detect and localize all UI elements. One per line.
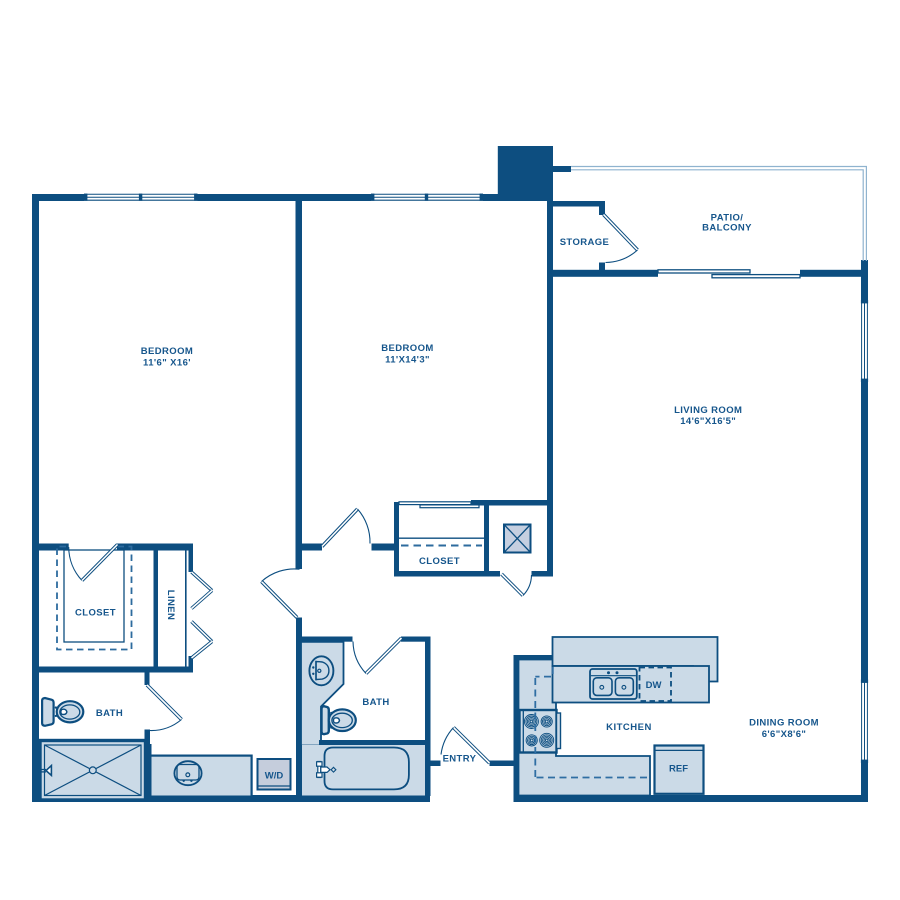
svg-text:BATH: BATH bbox=[362, 697, 389, 708]
svg-text:14'6"X16'5": 14'6"X16'5" bbox=[680, 416, 736, 427]
svg-text:6'6"X8'6": 6'6"X8'6" bbox=[762, 729, 807, 740]
svg-text:11'X14'3": 11'X14'3" bbox=[385, 354, 430, 365]
svg-text:STORAGE: STORAGE bbox=[560, 237, 610, 248]
svg-text:CLOSET: CLOSET bbox=[75, 608, 116, 619]
svg-text:LIVING ROOM: LIVING ROOM bbox=[674, 405, 742, 416]
svg-text:DW: DW bbox=[646, 680, 662, 691]
svg-text:BALCONY: BALCONY bbox=[702, 222, 752, 233]
svg-text:BATH: BATH bbox=[96, 708, 123, 719]
svg-text:KITCHEN: KITCHEN bbox=[606, 722, 652, 733]
svg-text:11'6" X16': 11'6" X16' bbox=[143, 358, 191, 369]
svg-text:DINING ROOM: DINING ROOM bbox=[749, 718, 819, 729]
svg-text:CLOSET: CLOSET bbox=[419, 556, 460, 567]
svg-text:BEDROOM: BEDROOM bbox=[381, 343, 433, 354]
svg-text:LINEN: LINEN bbox=[165, 590, 176, 621]
svg-text:W/D: W/D bbox=[265, 771, 284, 782]
svg-text:ENTRY: ENTRY bbox=[443, 754, 477, 765]
svg-text:BEDROOM: BEDROOM bbox=[141, 346, 193, 357]
svg-text:REF: REF bbox=[669, 763, 688, 774]
